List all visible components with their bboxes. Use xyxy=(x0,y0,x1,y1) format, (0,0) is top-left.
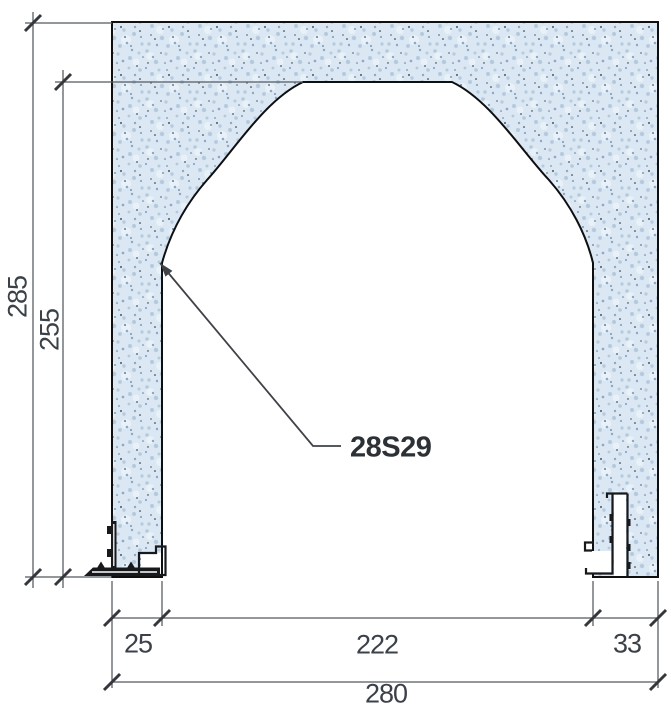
profile-knockouts xyxy=(141,494,626,576)
dim-label-left-pier-width: 25 xyxy=(124,629,152,660)
leader xyxy=(160,263,341,446)
dim-label-overall-width: 280 xyxy=(365,679,407,706)
leader-line xyxy=(160,263,341,446)
technical-section-drawing: 285 255 25 222 33 280 28S29 xyxy=(0,0,672,706)
left-track-screw xyxy=(97,562,105,569)
section-drawing-canvas xyxy=(0,0,672,706)
dim-label-opening-width: 222 xyxy=(356,630,398,661)
part-code-label: 28S29 xyxy=(350,432,431,465)
dim-label-overall-height: 285 xyxy=(3,276,34,318)
dim-label-right-pier-width: 33 xyxy=(613,629,641,660)
dim-label-opening-height: 255 xyxy=(35,309,66,351)
wall-section-body xyxy=(112,22,658,577)
wall-section xyxy=(112,22,658,577)
